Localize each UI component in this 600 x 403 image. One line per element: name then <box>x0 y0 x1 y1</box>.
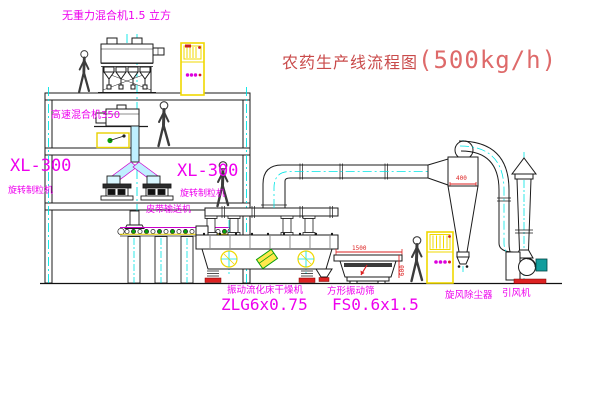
flow-diagram-page: 400 1500 600 <box>0 0 600 403</box>
label-granulator-name-left: 旋转制粒机 <box>8 187 53 196</box>
control-cabinet-1 <box>181 43 204 95</box>
label-granulator-model-left: XL-300 <box>10 158 71 175</box>
label-gravity-mixer: 无重力混合机1.5 立方 <box>62 10 171 21</box>
label-fan: 引风机 <box>502 289 531 299</box>
control-cabinet-2 <box>427 232 453 283</box>
cyclone-dim-text: 400 <box>456 175 467 182</box>
person-figure-ground <box>412 237 423 281</box>
exhaust-duct-main <box>261 159 450 208</box>
title-capacity: (500kg/h) <box>418 46 557 74</box>
page-title: 农药生产线流程图(500kg/h) <box>282 46 557 74</box>
square-vibrating-sieve: 1500 600 <box>334 245 406 284</box>
label-cyclone: 旋风除尘器 <box>445 291 493 301</box>
label-granulator-model-mid: XL-300 <box>177 163 238 180</box>
gravity-free-mixer <box>98 34 164 93</box>
label-dryer-model: ZLG6x0.75 <box>221 297 308 313</box>
label-belt-conveyor: 皮带输送机 <box>146 206 191 215</box>
label-sieve-model: FS0.6x1.5 <box>332 297 419 313</box>
person-figure-floor2 <box>159 102 170 146</box>
label-high-speed-mixer: 高速混合机350 <box>51 111 120 121</box>
title-chinese: 农药生产线流程图 <box>282 53 418 72</box>
sieve-length-dim-text: 1500 <box>352 245 367 252</box>
sieve-height-dim-text: 600 <box>399 265 406 276</box>
person-figure-roof <box>79 51 89 92</box>
label-granulator-name-mid: 旋转制粒机 <box>180 190 225 199</box>
fluid-bed-dryer <box>196 206 338 283</box>
